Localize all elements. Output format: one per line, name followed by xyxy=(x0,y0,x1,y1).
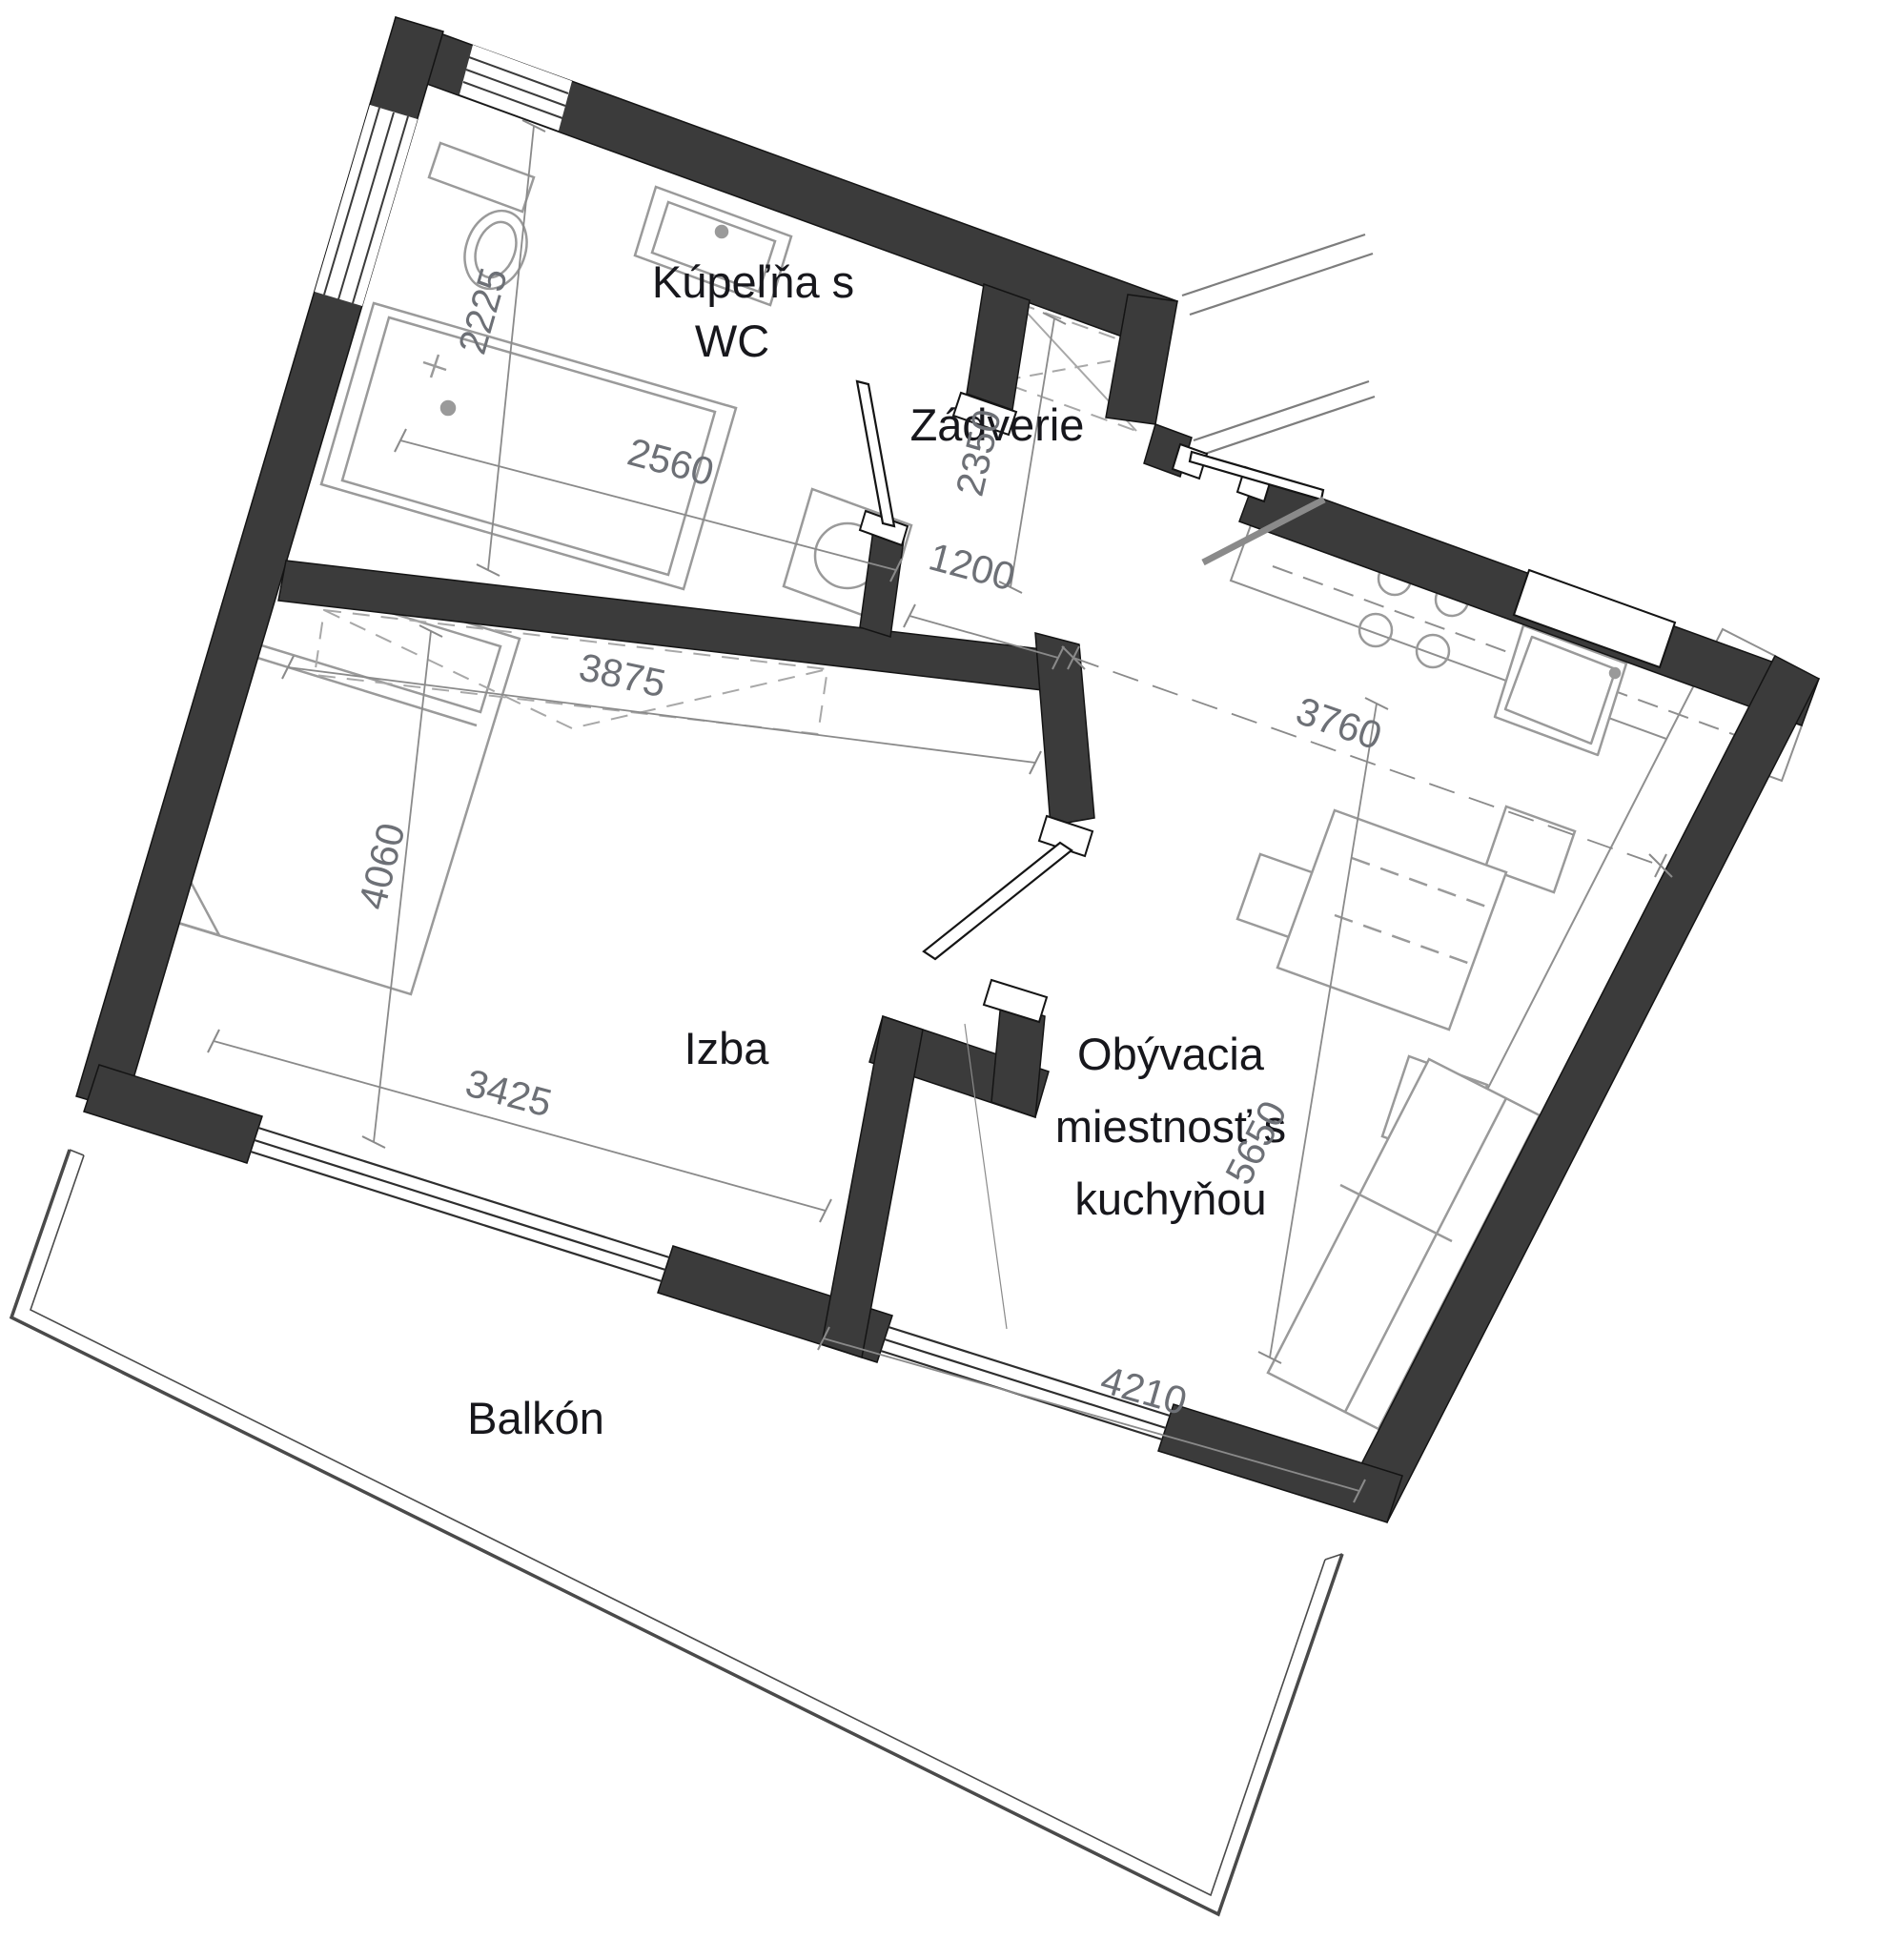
balcony-door-glazing xyxy=(258,1128,669,1257)
neighbour-wall-line xyxy=(1199,397,1375,456)
room-label-bathroom-line2: WC xyxy=(695,316,769,366)
wall-bottom-southwest xyxy=(84,1065,262,1163)
floor-plan-svg: Kúpeľňa s WC Zádverie Izba Obývacia mies… xyxy=(0,0,1899,1960)
dimension-3875: 3875 xyxy=(576,644,670,705)
tick xyxy=(208,1030,219,1052)
bedroom-door-leaf xyxy=(924,843,1072,959)
floor-plan-page: Kúpeľňa s WC Zádverie Izba Obývacia mies… xyxy=(0,0,1899,1960)
room-label-bathroom-line1: Kúpeľňa s xyxy=(652,256,854,307)
dining-set xyxy=(1237,806,1575,1030)
room-label-living-line1: Obývacia xyxy=(1077,1029,1265,1079)
adjacent-structure-lines xyxy=(1182,235,1375,456)
dimension-1200: 1200 xyxy=(925,534,1020,599)
neighbour-wall-line xyxy=(1194,381,1369,440)
washbasin-tap xyxy=(716,226,727,237)
dining-table xyxy=(1277,810,1506,1030)
wall-bathroom-east xyxy=(967,284,1030,410)
dimension-3760: 3760 xyxy=(1291,688,1387,758)
toilet-tank xyxy=(429,143,534,212)
kitchen-sink-tap xyxy=(1610,668,1620,678)
dimension-3425: 3425 xyxy=(461,1060,557,1125)
balcony-door-glazing xyxy=(251,1152,662,1281)
dimension-4210: 4210 xyxy=(1096,1358,1192,1423)
balcony-door-glazing xyxy=(255,1140,665,1270)
bathroom-door-leaf xyxy=(857,381,894,526)
wall-partition-leg xyxy=(822,1016,923,1358)
room-label-balcony: Balkón xyxy=(467,1393,604,1443)
tick xyxy=(820,1199,831,1222)
tick xyxy=(904,604,915,627)
balcony-railing-join-left xyxy=(70,1150,84,1155)
room-label-bedroom: Izba xyxy=(684,1023,770,1073)
bathtub-drain xyxy=(441,401,455,415)
